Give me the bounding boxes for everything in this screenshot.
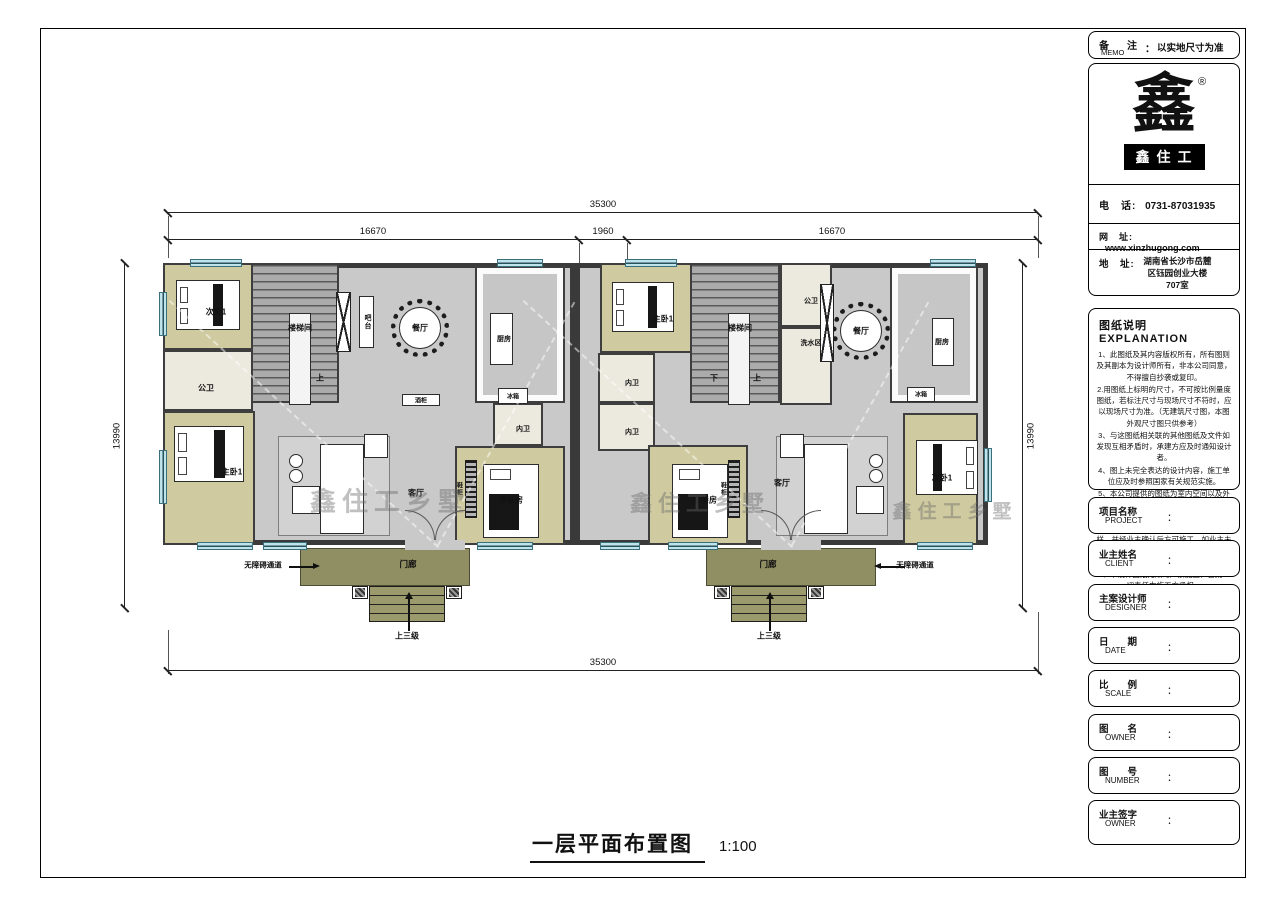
bed-pillow — [966, 471, 974, 489]
room-label: 次卧1 — [932, 473, 952, 484]
steps-arrow-icon — [769, 597, 771, 631]
web-label: 网 址: — [1099, 232, 1133, 242]
company-logo: 鑫® 鑫住工 — [1089, 68, 1239, 184]
room-label: 内卫 — [516, 424, 530, 434]
bed — [612, 282, 674, 332]
bed-pillow — [178, 433, 187, 451]
porch-label: 门廊 — [759, 558, 776, 570]
room-label: 公卫 — [804, 296, 818, 306]
logo-house-icon: 鑫 — [1132, 69, 1196, 140]
porch-column-hatch — [355, 588, 365, 597]
phone-row: 电 话: 0731-87031935 — [1089, 184, 1239, 223]
dimension-line — [124, 263, 125, 608]
room-label: 餐厅 — [853, 326, 869, 337]
porch-column — [352, 586, 368, 599]
dimension-line — [1022, 263, 1023, 608]
porch-column-hatch — [717, 588, 727, 597]
memo-value: 以实地尺寸为准 — [1157, 40, 1224, 54]
field-box-number: 图 号NUMBER： — [1088, 757, 1240, 794]
plan-title: 一层平面布置图1:100 — [530, 828, 757, 858]
plan-title-text: 一层平面布置图 — [530, 833, 705, 863]
dimension-label: 35300 — [590, 657, 616, 668]
registered-mark-icon: ® — [1198, 76, 1206, 88]
porch-column — [714, 586, 730, 599]
porch-column-hatch — [449, 588, 459, 597]
room-label: 次卧1 — [206, 307, 226, 318]
dimension-label: 13990 — [112, 423, 123, 449]
ramp-arrow-head-icon — [313, 563, 320, 569]
field-colon: ： — [1167, 596, 1177, 611]
porch — [300, 548, 470, 586]
room-label: 主卧1 — [653, 314, 673, 325]
contact-box: 鑫® 鑫住工 电 话: 0731-87031935 网 址: www.xinzh… — [1088, 63, 1240, 296]
steps-arrow-head-icon — [766, 592, 774, 599]
bed-pillow — [616, 310, 624, 326]
field-label-en: SCALE — [1105, 689, 1131, 698]
window — [159, 450, 167, 504]
pouf-seat — [869, 454, 883, 468]
window — [159, 292, 167, 336]
room-label: 孝亲房 — [499, 495, 523, 506]
dimension-line — [168, 212, 1038, 213]
room-label: 上 — [316, 373, 324, 384]
pouf-seat — [869, 469, 883, 483]
field-label-en: NUMBER — [1105, 776, 1140, 785]
porch — [706, 548, 876, 586]
explanation-box: 图纸说明 EXPLANATION 1、此图纸及其内容版权所有，所有图则及其副本为… — [1088, 308, 1240, 490]
field-colon: ： — [1167, 639, 1177, 654]
room-label: 酒柜 — [415, 396, 427, 405]
explanation-note: 2.用图纸上标明的尺寸，不可按比例量度图纸，若标注尺寸与现场尺寸不符时，应以现场… — [1096, 384, 1232, 429]
porch-column-hatch — [811, 588, 821, 597]
field-box-client: 业主姓名CLIENT： — [1088, 540, 1240, 577]
ramp-arrow-icon — [289, 566, 313, 568]
room-label: 厨房 — [935, 337, 949, 347]
coffee-table — [780, 434, 804, 458]
bed-blanket — [213, 284, 223, 326]
field-label-en: OWNER — [1105, 733, 1136, 742]
room-kitchen — [475, 266, 565, 403]
room-label: 吧台 — [362, 314, 372, 330]
bed — [916, 440, 978, 495]
dimension-line — [168, 670, 1038, 671]
field-label-en: CLIENT — [1105, 559, 1133, 568]
room-label: 内卫 — [625, 378, 639, 388]
screen-panel — [820, 284, 834, 362]
ramp-label: 无障碍通道 — [244, 560, 282, 571]
room-label: 餐厅 — [412, 323, 428, 334]
web-row: 网 址: www.xinzhugong.com — [1089, 223, 1239, 249]
plan-scale: 1:100 — [719, 838, 757, 855]
ramp-label: 无障碍通道 — [896, 560, 934, 571]
porch-column — [808, 586, 824, 599]
window — [984, 448, 992, 502]
room-label: 楼梯间 — [288, 323, 312, 334]
memo-label-en: MEMO — [1101, 48, 1124, 57]
field-colon: ： — [1167, 812, 1177, 827]
brand-name: 鑫住工 — [1124, 144, 1205, 170]
field-box-scale: 比 例SCALE： — [1088, 670, 1240, 707]
room-label: 内卫 — [625, 427, 639, 437]
dimension-label: 1960 — [592, 226, 613, 237]
field-label-en: OWNER — [1105, 819, 1136, 828]
steps-arrow-head-icon — [405, 592, 413, 599]
extension-line — [1038, 216, 1039, 258]
field-colon: ： — [1167, 769, 1177, 784]
bed-pillow — [490, 469, 510, 480]
window — [477, 542, 533, 550]
watermark: 鑫住工乡墅 — [630, 486, 770, 518]
bed — [176, 280, 240, 330]
window — [917, 542, 973, 550]
dimension-line — [168, 239, 1038, 240]
field-label-en: DESIGNER — [1105, 603, 1147, 612]
phone-value: 0731-87031935 — [1145, 201, 1215, 212]
bed-pillow — [679, 469, 699, 480]
window — [930, 259, 976, 267]
window — [600, 542, 640, 550]
address-row: 地 址: 湖南省长沙市岳麓 区钰园创业大楼 707室 — [1089, 249, 1239, 295]
field-label-en: DATE — [1105, 646, 1126, 655]
room-label: 上 — [753, 373, 761, 384]
room-bath — [163, 350, 253, 411]
explanation-title: 图纸说明 EXPLANATION — [1089, 309, 1239, 349]
coffee-table — [364, 434, 388, 458]
room-label: 厨房 — [497, 334, 511, 344]
steps-label: 上三级 — [395, 631, 419, 642]
extension-line — [168, 216, 169, 258]
field-box-project: 项目名称PROJECT： — [1088, 497, 1240, 534]
address-value: 湖南省长沙市岳麓 区钰园创业大楼 707室 — [1143, 256, 1211, 292]
memo-colon: ： — [1145, 40, 1155, 55]
field-box-designer: 主案设计师DESIGNER： — [1088, 584, 1240, 621]
watermark: 鑫住工乡墅 — [310, 482, 470, 519]
memo-box: 备 注 MEMO ： 以实地尺寸为准 — [1088, 31, 1240, 59]
phone-label: 电 话: — [1099, 201, 1136, 212]
dimension-label: 13990 — [1026, 423, 1037, 449]
field-box-date: 日 期DATE： — [1088, 627, 1240, 664]
bed-pillow — [616, 289, 624, 305]
window — [190, 259, 242, 267]
extension-line — [579, 243, 580, 263]
dimension-label: 16670 — [360, 226, 386, 237]
pouf-seat — [289, 454, 303, 468]
room-label: 客厅 — [774, 478, 790, 489]
window — [497, 259, 543, 267]
field-colon: ： — [1167, 726, 1177, 741]
window — [197, 542, 253, 550]
explanation-note: 3、与这图纸相关联的其他图纸及文件如发现互相矛盾时，承建方应及时通知设计者。 — [1096, 430, 1232, 464]
dimension-label: 35300 — [590, 199, 616, 210]
room-label: 下 — [710, 373, 718, 384]
field-colon: ： — [1167, 509, 1177, 524]
watermark: 鑫住工乡墅 — [892, 497, 1017, 524]
ramp-arrow-icon — [881, 566, 905, 568]
room-label: 冰箱 — [507, 392, 519, 401]
explanation-note: 1、此图纸及其内容版权所有，所有图则及其副本为设计师所有，非本公司同意，不得擅自… — [1096, 349, 1232, 383]
extension-line — [1038, 612, 1039, 674]
bed-pillow — [966, 447, 974, 465]
explanation-note: 4、图上未完全表达的设计内容，施工单位应及时参照国家有关规范实施。 — [1096, 465, 1232, 488]
bed-blanket — [933, 444, 943, 491]
pouf-seat — [289, 469, 303, 483]
coffee-table — [856, 486, 884, 514]
dimension-label: 16670 — [819, 226, 845, 237]
extension-line — [168, 630, 169, 674]
window — [668, 542, 718, 550]
room-label: 公卫 — [198, 383, 214, 394]
room-label: 楼梯间 — [728, 323, 752, 334]
ramp-arrow-head-icon — [874, 563, 881, 569]
steps-arrow-icon — [408, 597, 410, 631]
drawing-sheet: 3530016670196016670353001399013990次卧1公卫主… — [0, 0, 1280, 904]
field-box-owner: 图 名OWNER： — [1088, 714, 1240, 751]
bed-pillow — [180, 287, 188, 303]
field-label-en: PROJECT — [1105, 516, 1142, 525]
room-label: 冰箱 — [915, 390, 927, 399]
address-label: 地 址: — [1099, 259, 1135, 270]
steps-label: 上三级 — [757, 631, 781, 642]
window — [625, 259, 677, 267]
porch-label: 门廊 — [399, 558, 416, 570]
screen-panel — [336, 292, 351, 352]
window — [263, 542, 307, 550]
field-box-owner: 业主签字OWNER： — [1088, 800, 1240, 845]
room-label: 洗水区 — [801, 338, 822, 348]
field-colon: ： — [1167, 552, 1177, 567]
bed-pillow — [178, 457, 187, 475]
field-colon: ： — [1167, 682, 1177, 697]
room-label: 主卧1 — [222, 467, 242, 478]
porch-column — [446, 586, 462, 599]
